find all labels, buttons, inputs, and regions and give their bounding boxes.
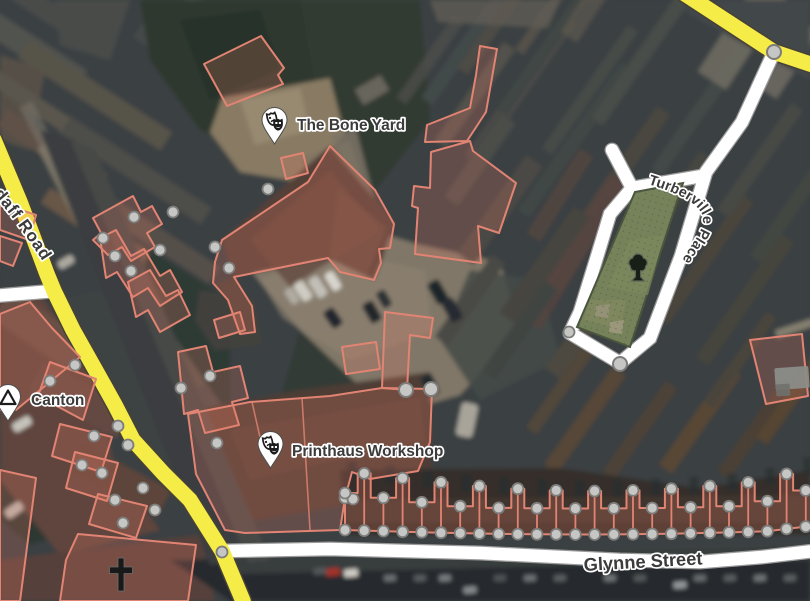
- svg-text:The Bone Yard: The Bone Yard: [297, 117, 405, 134]
- svg-text:Printhaus Workshop: Printhaus Workshop: [292, 443, 443, 460]
- svg-text:Canton: Canton: [31, 392, 84, 409]
